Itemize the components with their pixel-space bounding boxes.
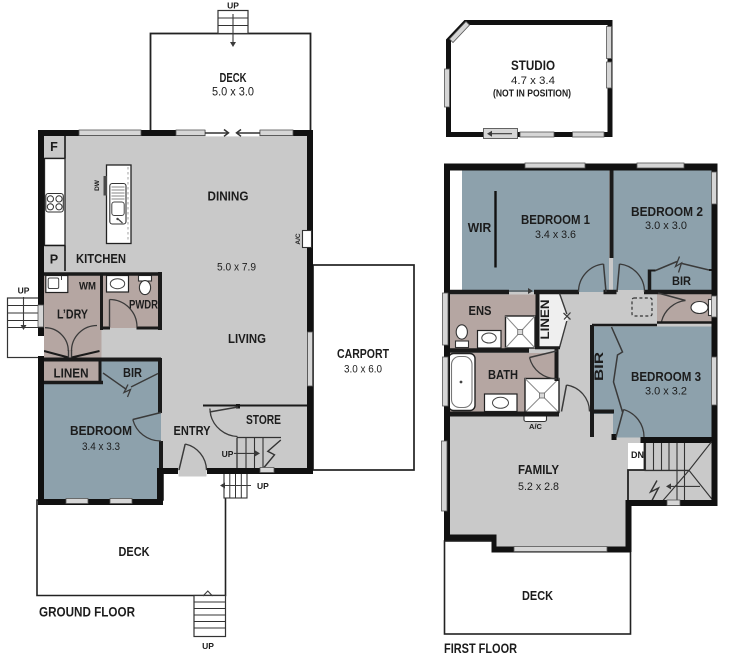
svg-text:F: F [50, 140, 58, 154]
svg-text:KITCHEN: KITCHEN [76, 251, 126, 266]
svg-text:L’DRY: L’DRY [57, 308, 89, 322]
svg-text:UP: UP [227, 1, 239, 11]
svg-text:DECK: DECK [220, 70, 247, 85]
svg-text:A/C: A/C [295, 233, 302, 245]
svg-text:4.7 x 3.4: 4.7 x 3.4 [511, 75, 555, 87]
svg-text:3.4 x 3.6: 3.4 x 3.6 [535, 229, 576, 241]
svg-text:ENS: ENS [469, 304, 492, 318]
svg-text:BEDROOM 1: BEDROOM 1 [521, 212, 591, 227]
svg-text:5.0 x 3.0: 5.0 x 3.0 [212, 87, 254, 99]
svg-text:DW: DW [94, 179, 101, 191]
svg-text:(NOT IN POSITION): (NOT IN POSITION) [493, 89, 571, 100]
svg-text:WM: WM [79, 281, 96, 293]
svg-text:DECK: DECK [522, 588, 553, 603]
svg-text:LIVING: LIVING [228, 331, 266, 346]
svg-text:CARPORT: CARPORT [337, 346, 389, 361]
svg-text:3.0 x 3.2: 3.0 x 3.2 [645, 386, 687, 398]
svg-text:UP: UP [257, 481, 269, 491]
svg-text:FIRST FLOOR: FIRST FLOOR [444, 641, 517, 656]
svg-text:3.4 x 3.3: 3.4 x 3.3 [82, 441, 120, 453]
svg-text:FAMILY: FAMILY [518, 462, 559, 477]
svg-text:LINEN: LINEN [539, 300, 552, 340]
svg-text:UP: UP [202, 641, 214, 651]
svg-text:3.0 x 3.0: 3.0 x 3.0 [645, 220, 687, 232]
svg-text:STUDIO: STUDIO [511, 58, 555, 73]
svg-text:5.2 x 2.8: 5.2 x 2.8 [518, 481, 559, 493]
svg-text:DECK: DECK [119, 544, 150, 559]
svg-text:GROUND FLOOR: GROUND FLOOR [39, 605, 135, 620]
svg-text:UP: UP [222, 449, 234, 459]
svg-text:BATH: BATH [488, 368, 518, 382]
svg-text:3.0 x 6.0: 3.0 x 6.0 [344, 364, 382, 376]
svg-text:A/C: A/C [529, 422, 543, 431]
svg-text:LINEN: LINEN [54, 367, 89, 381]
svg-text:BEDROOM: BEDROOM [70, 423, 132, 438]
svg-text:5.0 x 7.9: 5.0 x 7.9 [217, 262, 256, 274]
svg-text:P: P [50, 253, 58, 267]
svg-text:PWDR: PWDR [129, 298, 158, 312]
svg-text:BEDROOM 3: BEDROOM 3 [631, 369, 701, 384]
svg-text:BIR: BIR [123, 366, 142, 380]
svg-text:WIR: WIR [468, 221, 492, 235]
svg-text:BEDROOM 2: BEDROOM 2 [631, 204, 703, 219]
svg-text:BIR: BIR [592, 352, 606, 381]
svg-text:DINING: DINING [208, 189, 249, 204]
svg-text:STORE: STORE [246, 412, 281, 427]
svg-text:BIR: BIR [672, 274, 691, 288]
svg-text:UP: UP [18, 286, 30, 296]
svg-text:DN: DN [631, 450, 644, 460]
svg-text:ENTRY: ENTRY [174, 423, 211, 438]
